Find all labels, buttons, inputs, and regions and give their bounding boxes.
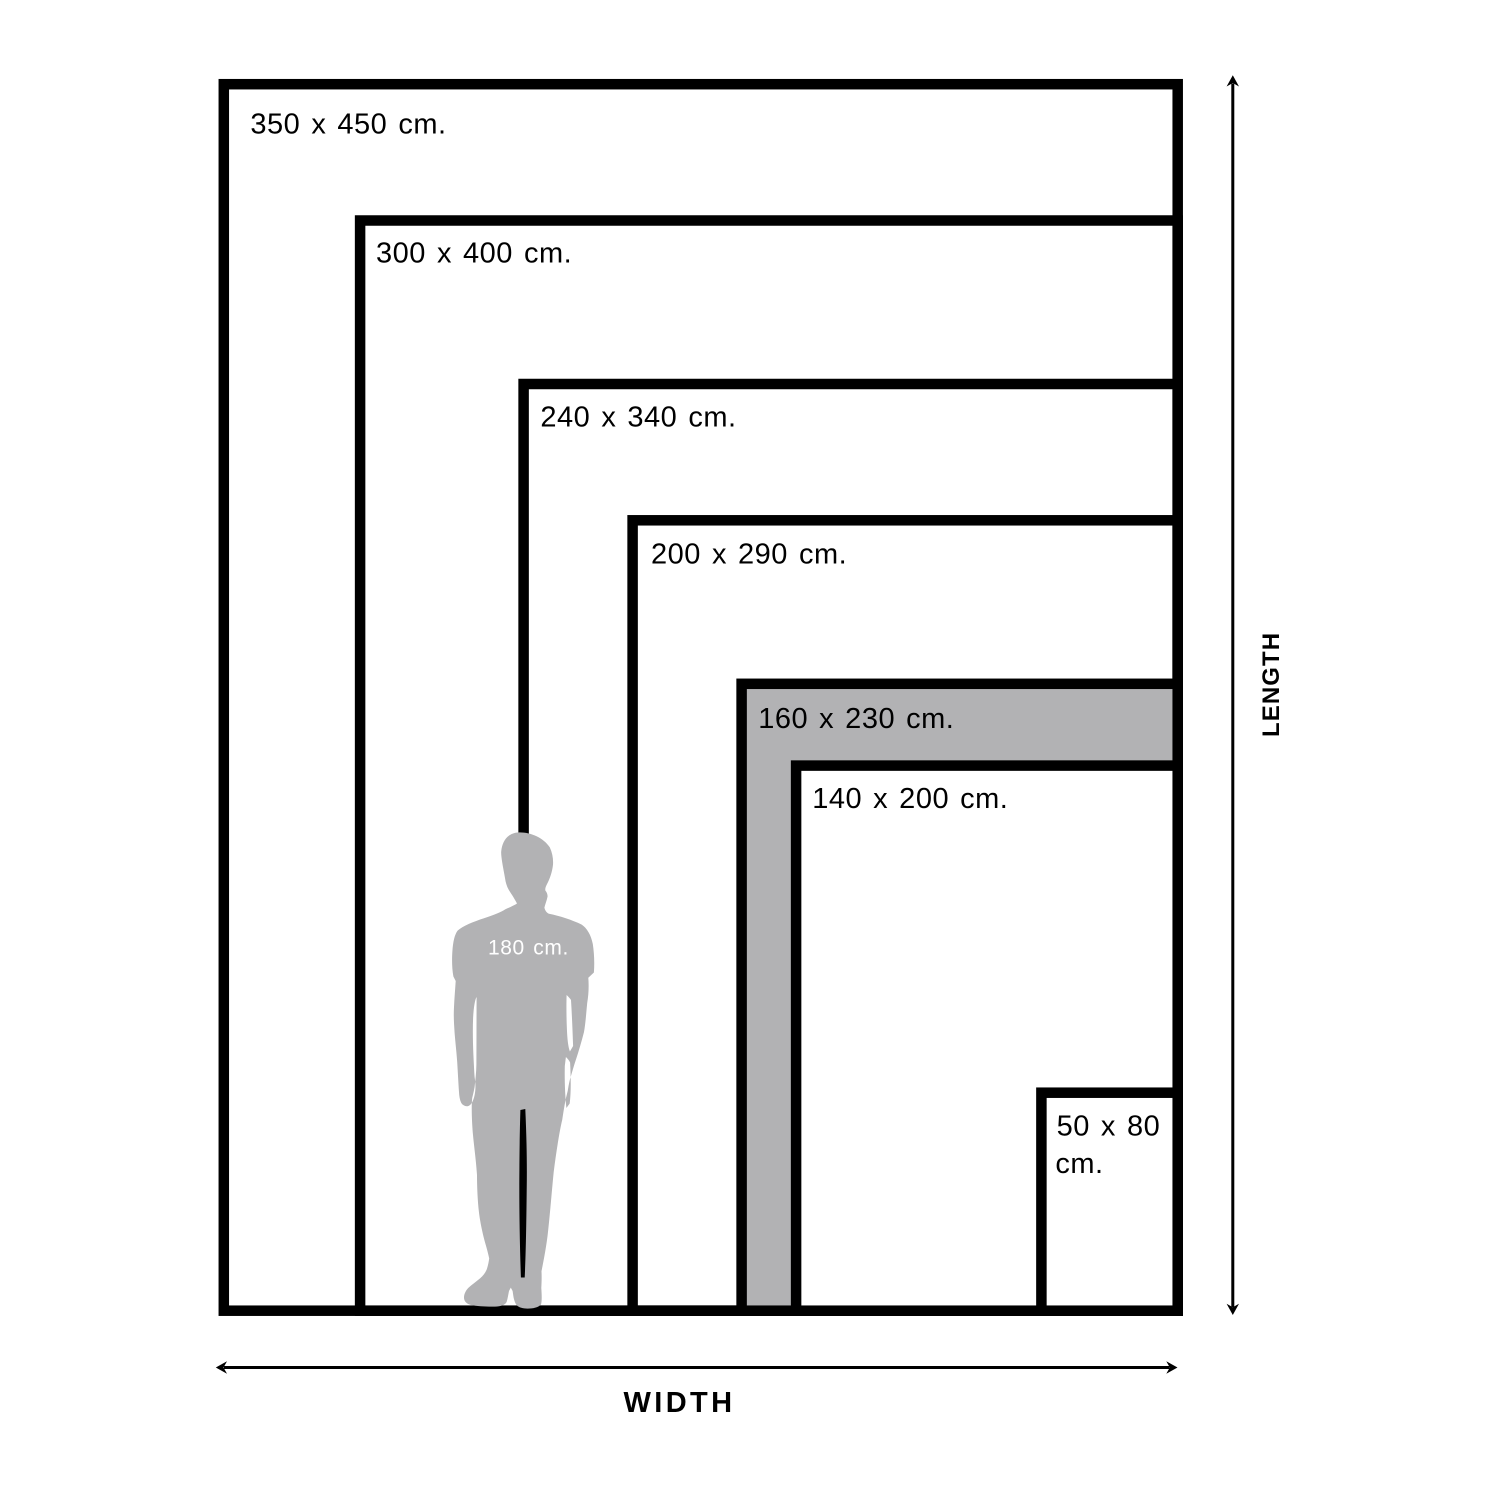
svg-text:cm.: cm. xyxy=(1055,1148,1103,1180)
svg-text:300 x 400 cm.: 300 x 400 cm. xyxy=(376,238,572,270)
svg-text:180 cm.: 180 cm. xyxy=(488,937,569,960)
svg-text:200 x 290 cm.: 200 x 290 cm. xyxy=(651,539,847,571)
svg-text:LENGTH: LENGTH xyxy=(1258,632,1285,737)
svg-text:240 x 340 cm.: 240 x 340 cm. xyxy=(540,402,736,434)
svg-text:160 x 230 cm.: 160 x 230 cm. xyxy=(758,703,954,735)
svg-text:140 x 200 cm.: 140 x 200 cm. xyxy=(812,783,1008,815)
svg-text:350 x 450 cm.: 350 x 450 cm. xyxy=(250,108,446,140)
svg-text:50 x 80: 50 x 80 xyxy=(1057,1111,1161,1143)
svg-text:WIDTH: WIDTH xyxy=(623,1387,735,1419)
